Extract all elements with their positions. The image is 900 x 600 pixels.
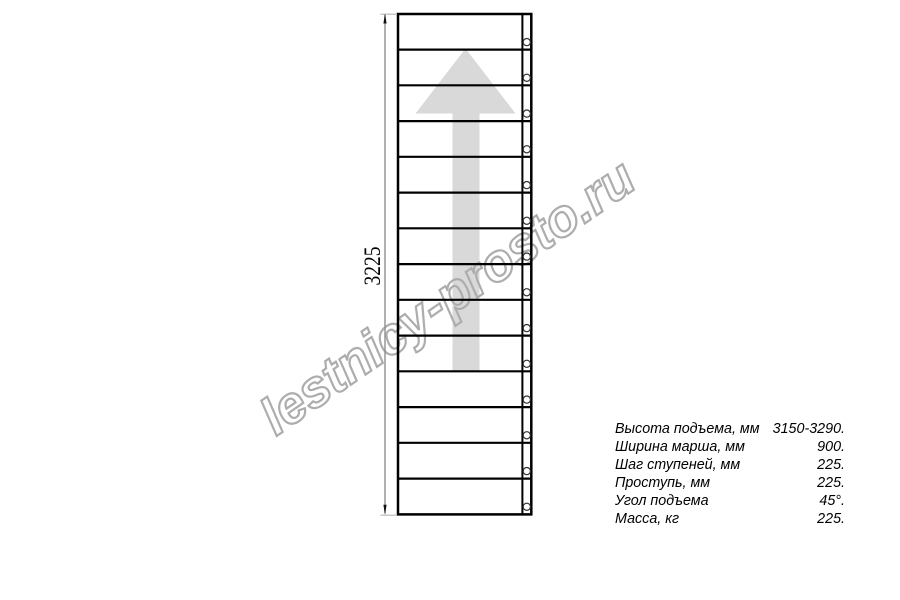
svg-text:3150-3290.: 3150-3290.: [773, 421, 845, 437]
svg-text:Ширина марша, мм: Ширина марша, мм: [615, 439, 745, 455]
svg-text:Масса, кг: Масса, кг: [615, 511, 679, 527]
svg-text:3225: 3225: [359, 246, 385, 285]
svg-text:225.: 225.: [816, 475, 845, 491]
svg-text:45°.: 45°.: [819, 493, 845, 509]
svg-text:Проступь, мм: Проступь, мм: [615, 475, 710, 491]
svg-text:Шаг ступеней, мм: Шаг ступеней, мм: [615, 457, 740, 473]
svg-text:Высота подъема, мм: Высота подъема, мм: [615, 421, 760, 437]
svg-text:900.: 900.: [817, 439, 845, 455]
svg-text:Угол подъема: Угол подъема: [614, 493, 709, 509]
svg-text:225.: 225.: [816, 457, 845, 473]
svg-text:225.: 225.: [816, 511, 845, 527]
